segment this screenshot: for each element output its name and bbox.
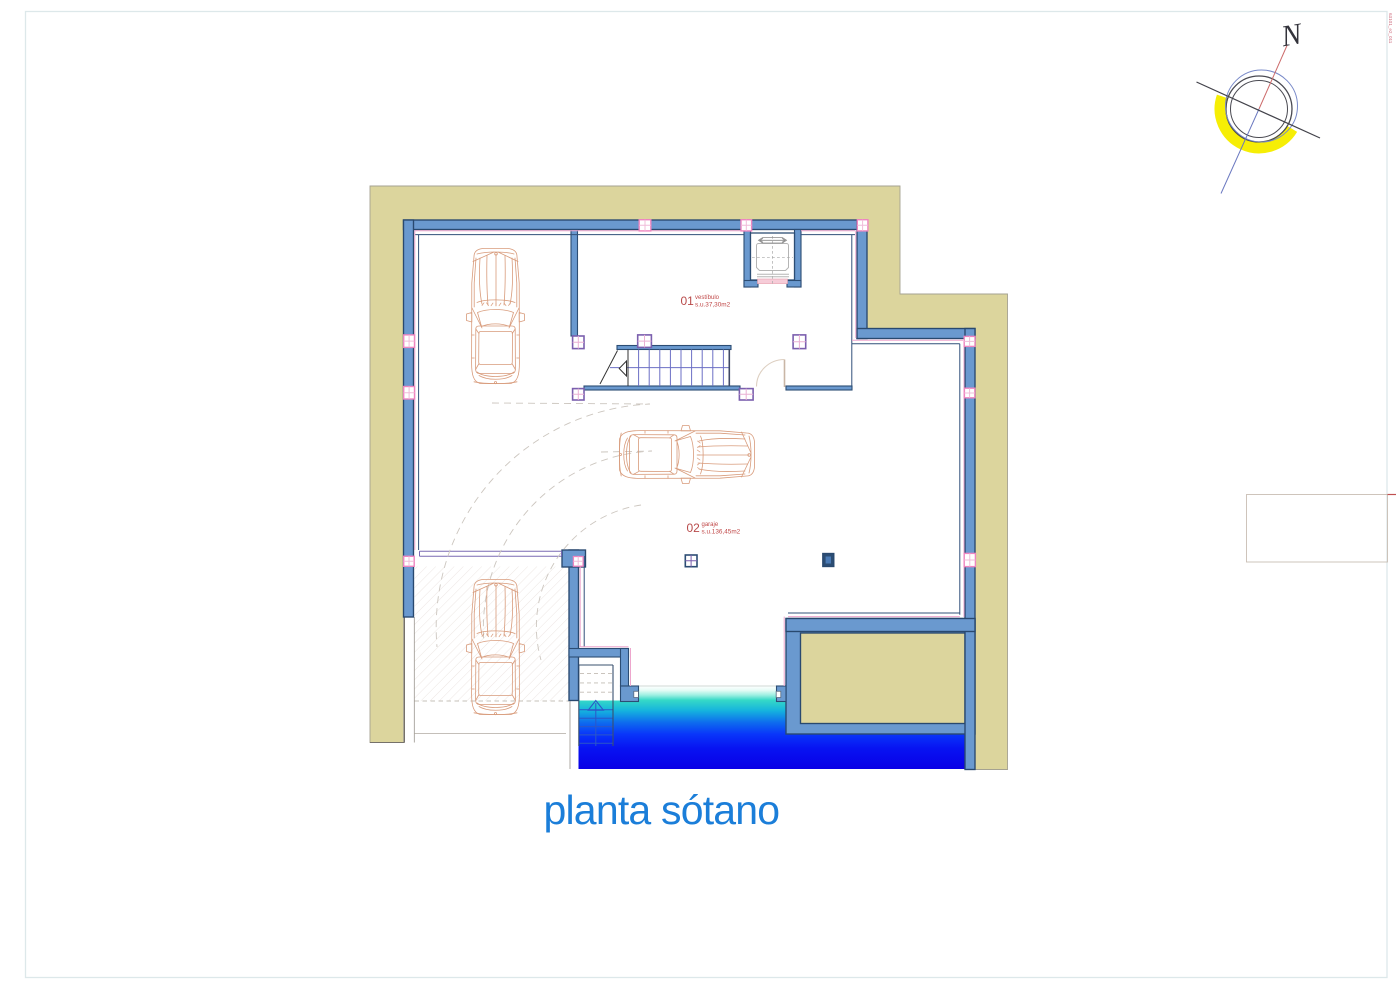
svg-text:s.u.37,30m2: s.u.37,30m2 [695, 302, 731, 309]
svg-text:01: 01 [681, 294, 695, 308]
svg-text:63101_e2_011: 63101_e2_011 [1388, 13, 1393, 44]
svg-text:s.u.136,45m2: s.u.136,45m2 [702, 529, 741, 536]
svg-text:garaje: garaje [702, 522, 719, 528]
svg-text:vestíbulo: vestíbulo [695, 295, 720, 301]
svg-text:planta sótano: planta sótano [544, 787, 780, 833]
svg-text:02: 02 [687, 521, 701, 535]
